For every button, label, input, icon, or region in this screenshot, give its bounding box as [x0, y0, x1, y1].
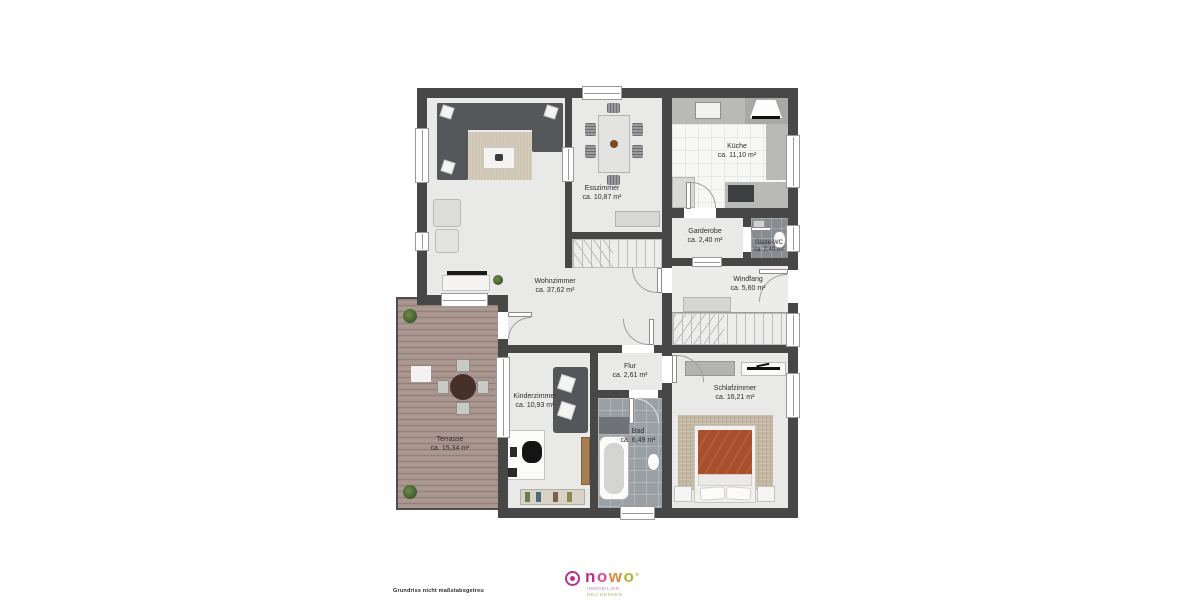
dining-chair: [585, 123, 596, 136]
table-centerpiece: [610, 140, 618, 148]
nightstand: [757, 486, 775, 502]
dining-sideboard: [615, 211, 660, 227]
shelf-books: [525, 492, 530, 502]
passage-wohnzimmer-esszimmer: [562, 147, 574, 182]
room-area: ca. 5,60 m²: [730, 285, 765, 292]
stair-winders: [573, 240, 613, 267]
terrace-deck: [396, 297, 500, 510]
room-label-schlafzimmer: Schlafzimmerca. 16,21 m²: [714, 385, 756, 402]
door-opening-kitchen: [684, 208, 716, 218]
armchair: [433, 199, 461, 227]
room-area: ca. 10,93 m²: [516, 402, 555, 409]
dining-chair: [607, 175, 620, 185]
dining-chair: [607, 103, 620, 113]
room-area: ca. 37,62 m²: [536, 287, 575, 294]
room-name: Flur: [624, 363, 636, 370]
bathtub-basin: [604, 443, 624, 494]
window-living-left-large: [415, 128, 429, 183]
terrace-mat: [411, 366, 431, 382]
terrace-chair: [456, 402, 470, 415]
terrace-door-opening: [498, 312, 508, 339]
window-living-left-small: [415, 232, 429, 251]
room-name: Garderobe: [688, 228, 721, 235]
dining-chair: [585, 145, 596, 158]
brand-name: nowo°: [585, 568, 641, 585]
plant: [493, 275, 503, 285]
brand-letter: o: [624, 567, 636, 586]
tv-sideboard: [442, 275, 490, 291]
desk-monitor: [510, 447, 517, 457]
brand-tagline-line1: IMMOBILIEN: [587, 586, 620, 591]
room-name: Terrasse: [437, 436, 464, 443]
kitchen-sink: [695, 102, 721, 119]
window-stair-right: [786, 313, 800, 347]
disclaimer-text: Grundriss nicht maßstabsgetreu: [393, 588, 484, 594]
brand-letter: n: [585, 567, 597, 586]
window-bedroom-right: [786, 373, 800, 418]
terrace-plant: [403, 309, 417, 323]
bed-duvet: [698, 430, 752, 475]
wall-stair-stub: [565, 239, 572, 268]
brand-letter: o: [597, 567, 609, 586]
room-label-kinderzimmer: Kinderzimmerca. 10,93 m²: [513, 393, 556, 410]
floor-plan: Wohnzimmerca. 37,62 m² Esszimmerca. 10,8…: [395, 85, 805, 520]
shelf-books: [567, 492, 572, 502]
nightstand: [674, 486, 692, 502]
dining-chair: [632, 145, 643, 158]
room-label-terrasse: Terrasseca. 15,34 m²: [431, 436, 470, 453]
door-opening-flur: [622, 345, 654, 353]
door-opening-guest-wc: [743, 227, 751, 252]
room-area: ca. 11,10 m²: [718, 152, 756, 159]
room-area: ca. 2,40 m²: [754, 247, 784, 253]
room-label-kueche: Kücheca. 11,10 m²: [718, 143, 756, 160]
door-opening-bad: [629, 390, 658, 398]
wall-garderobe-windfang: [662, 258, 798, 266]
bath-toilet: [647, 453, 660, 471]
ottoman: [435, 229, 459, 253]
terrace-plant: [403, 485, 417, 499]
brand-suffix: °: [635, 571, 640, 581]
room-label-flur: Flurca. 2,61 m²: [612, 363, 647, 380]
room-area: ca. 2,61 m²: [612, 372, 647, 379]
flur-door-leaf: [649, 319, 654, 345]
window-esszimmer-top: [582, 86, 622, 100]
room-name: Schlafzimmer: [714, 385, 756, 392]
room-area: ca. 15,34 m²: [431, 445, 470, 452]
kitchen-counter-right: [766, 124, 788, 180]
room-label-wohnzimmer: Wohnzimmerca. 37,62 m²: [534, 278, 575, 295]
stair-edge-line: [672, 312, 788, 313]
wall-kitchen-garderobe: [662, 208, 798, 218]
bed-blanket-fold: [698, 474, 752, 486]
room-label-windfang: Windfangca. 5,60 m²: [730, 276, 765, 293]
room-name: Kinderzimmer: [513, 393, 556, 400]
wall-center-vertical: [662, 293, 672, 353]
room-label-esszimmer: Esszimmerca. 10,87 m²: [583, 185, 622, 202]
room-name: Esszimmer: [585, 185, 620, 192]
brand-logo: nowo° IMMOBILIEN NEU DENKEN: [565, 568, 675, 598]
cooktop: [728, 185, 754, 202]
printer: [508, 468, 517, 477]
bed-pillow: [700, 486, 726, 501]
room-name: Wohnzimmer: [534, 278, 575, 285]
brand-circle-dot: [570, 576, 575, 581]
brand-tagline-line2: NEU DENKEN: [587, 592, 623, 597]
room-area: ca. 16,21 m²: [716, 394, 755, 401]
window-kitchen-right: [786, 135, 800, 188]
glazed-door-garderobe: [692, 257, 722, 267]
shelf-books: [553, 492, 558, 502]
room-area: ca. 6,49 m²: [620, 437, 655, 444]
terrace-table: [450, 374, 476, 400]
bed-pillow: [726, 486, 752, 501]
room-label-bad: Badca. 6,49 m²: [620, 428, 655, 445]
wall-esszimmer-bottom: [565, 232, 662, 239]
room-label-garderobe: Garderobeca. 2,40 m²: [687, 228, 722, 245]
wall-flur-kinderzimmer: [590, 353, 598, 508]
wall-center-vertical: [662, 98, 672, 268]
table-decor: [495, 154, 503, 161]
stair-winders: [673, 314, 724, 344]
window-bad-bottom: [620, 506, 655, 520]
main-staircase: [572, 239, 662, 268]
shelf-books: [536, 492, 541, 502]
terrace-chair: [437, 380, 449, 394]
dining-chair: [632, 123, 643, 136]
wall-esszimmer-left: [565, 98, 572, 147]
entry-cabinet: [683, 297, 731, 312]
basement-staircase: [672, 313, 788, 345]
room-area: ca. 10,87 m²: [583, 194, 622, 201]
room-area: ca. 2,40 m²: [687, 237, 722, 244]
room-name: Bad: [632, 428, 644, 435]
hood-base: [752, 116, 780, 119]
desk-chair: [522, 441, 542, 463]
window-kids-terrace: [496, 357, 510, 438]
door-opening-schlafzimmer: [662, 356, 672, 383]
terrace-chair: [456, 359, 470, 372]
terrace-chair: [477, 380, 489, 394]
room-label-gaeste-wc: Gäste-WCca. 2,40 m²: [754, 240, 784, 254]
window-guest-wc-right: [786, 225, 800, 252]
entry-living-door-leaf: [657, 268, 662, 293]
door-opening-living-entry: [662, 268, 672, 293]
room-name: Windfang: [733, 276, 763, 283]
tv: [447, 271, 487, 275]
window-living-terrace: [441, 293, 488, 307]
room-name: Gäste-WC: [755, 240, 783, 246]
wall-left-upper: [417, 88, 427, 305]
wall-esszimmer-left: [565, 182, 572, 239]
front-door-opening: [788, 270, 798, 303]
wall-shelf: [581, 437, 590, 485]
brand-letter: w: [609, 567, 624, 586]
room-name: Küche: [727, 143, 747, 150]
